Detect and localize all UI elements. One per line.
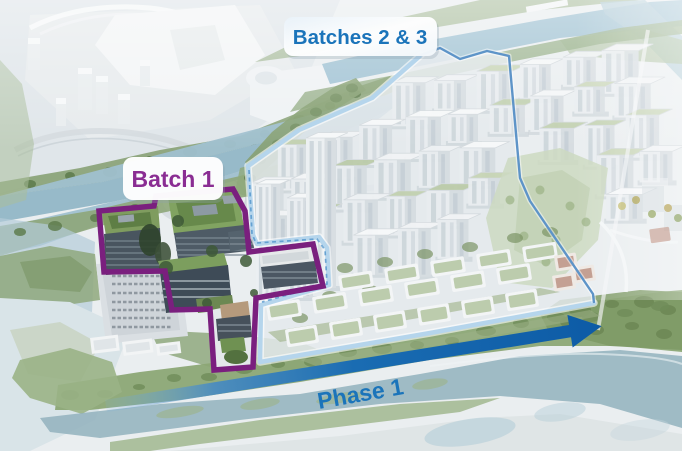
svg-text:Batch 1: Batch 1 [131,166,214,192]
svg-text:Batches 2 & 3: Batches 2 & 3 [293,26,427,49]
